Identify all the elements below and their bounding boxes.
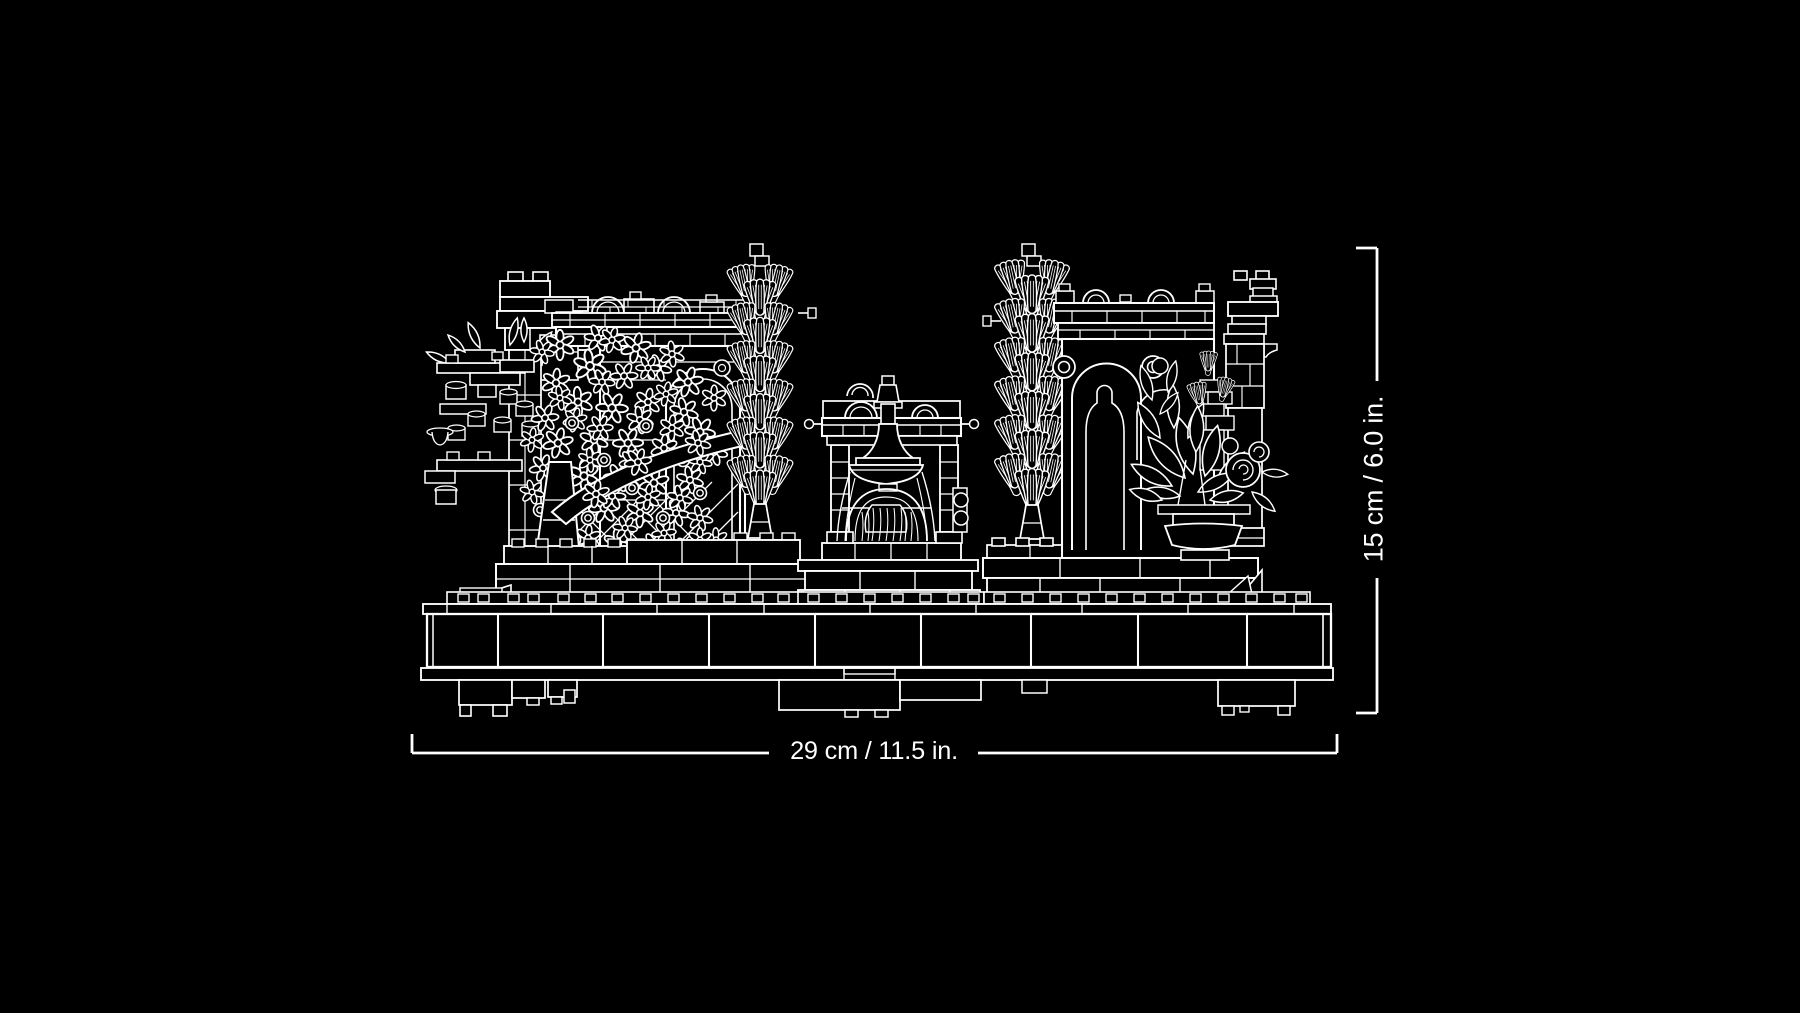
svg-text:29 cm / 11.5 in.: 29 cm / 11.5 in.	[790, 737, 958, 765]
svg-text:15 cm / 6.0 in.: 15 cm / 6.0 in.	[1359, 396, 1389, 563]
